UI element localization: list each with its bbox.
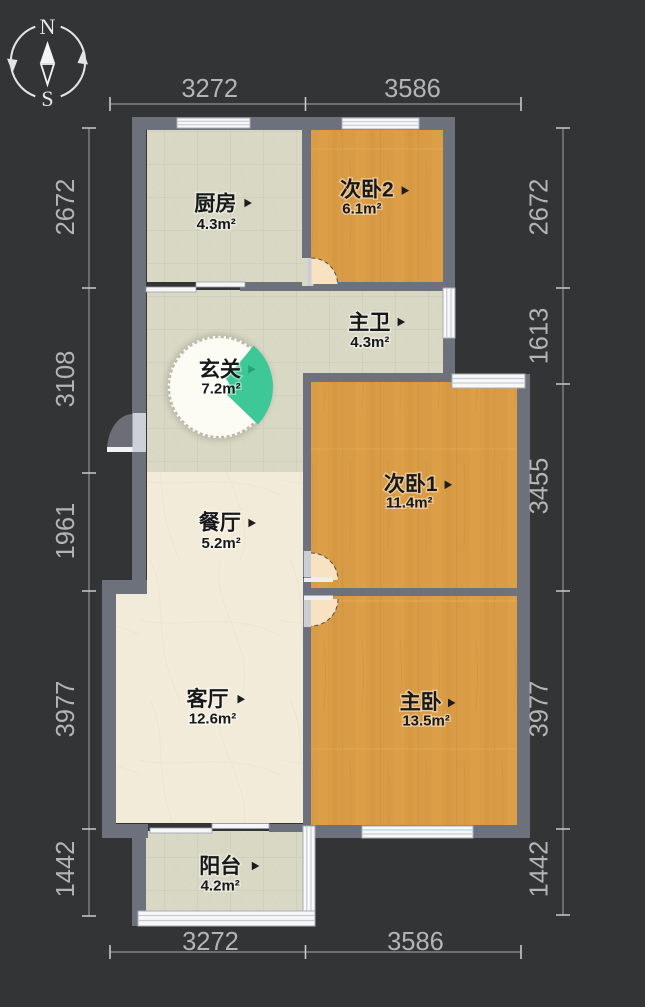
svg-text:3272: 3272 bbox=[181, 75, 238, 103]
svg-text:3977: 3977 bbox=[52, 681, 80, 738]
svg-text:厨房: 厨房 bbox=[194, 192, 236, 216]
svg-text:4.3m²: 4.3m² bbox=[197, 216, 236, 233]
svg-text:餐厅: 餐厅 bbox=[199, 511, 241, 535]
svg-text:1442: 1442 bbox=[52, 841, 80, 898]
svg-text:次卧2: 次卧2 bbox=[340, 178, 394, 202]
svg-text:次卧1: 次卧1 bbox=[384, 472, 438, 496]
svg-text:1613: 1613 bbox=[526, 308, 554, 365]
svg-text:5.2m²: 5.2m² bbox=[202, 535, 241, 552]
svg-text:N: N bbox=[40, 14, 56, 39]
svg-text:7.2m²: 7.2m² bbox=[201, 380, 240, 397]
svg-text:阳台: 阳台 bbox=[199, 854, 241, 878]
svg-text:2672: 2672 bbox=[52, 179, 80, 236]
svg-text:11.4m²: 11.4m² bbox=[386, 495, 433, 512]
svg-text:玄关: 玄关 bbox=[199, 357, 241, 381]
svg-text:3586: 3586 bbox=[384, 75, 441, 103]
svg-text:2672: 2672 bbox=[526, 179, 554, 236]
svg-text:3272: 3272 bbox=[182, 928, 239, 956]
svg-text:4.2m²: 4.2m² bbox=[201, 877, 240, 894]
svg-text:S: S bbox=[41, 86, 53, 111]
svg-text:主卧: 主卧 bbox=[400, 691, 442, 714]
svg-text:6.1m²: 6.1m² bbox=[342, 201, 381, 218]
svg-text:1442: 1442 bbox=[526, 841, 554, 898]
svg-text:3455: 3455 bbox=[526, 458, 554, 515]
svg-text:客厅: 客厅 bbox=[187, 687, 229, 711]
svg-text:1961: 1961 bbox=[52, 503, 80, 560]
svg-text:主卫: 主卫 bbox=[348, 312, 390, 335]
svg-text:3108: 3108 bbox=[52, 351, 80, 408]
svg-text:13.5m²: 13.5m² bbox=[402, 713, 450, 730]
svg-text:4.3m²: 4.3m² bbox=[350, 334, 389, 351]
svg-text:3977: 3977 bbox=[526, 681, 554, 738]
svg-text:12.6m²: 12.6m² bbox=[189, 710, 237, 727]
svg-text:3586: 3586 bbox=[387, 928, 444, 956]
